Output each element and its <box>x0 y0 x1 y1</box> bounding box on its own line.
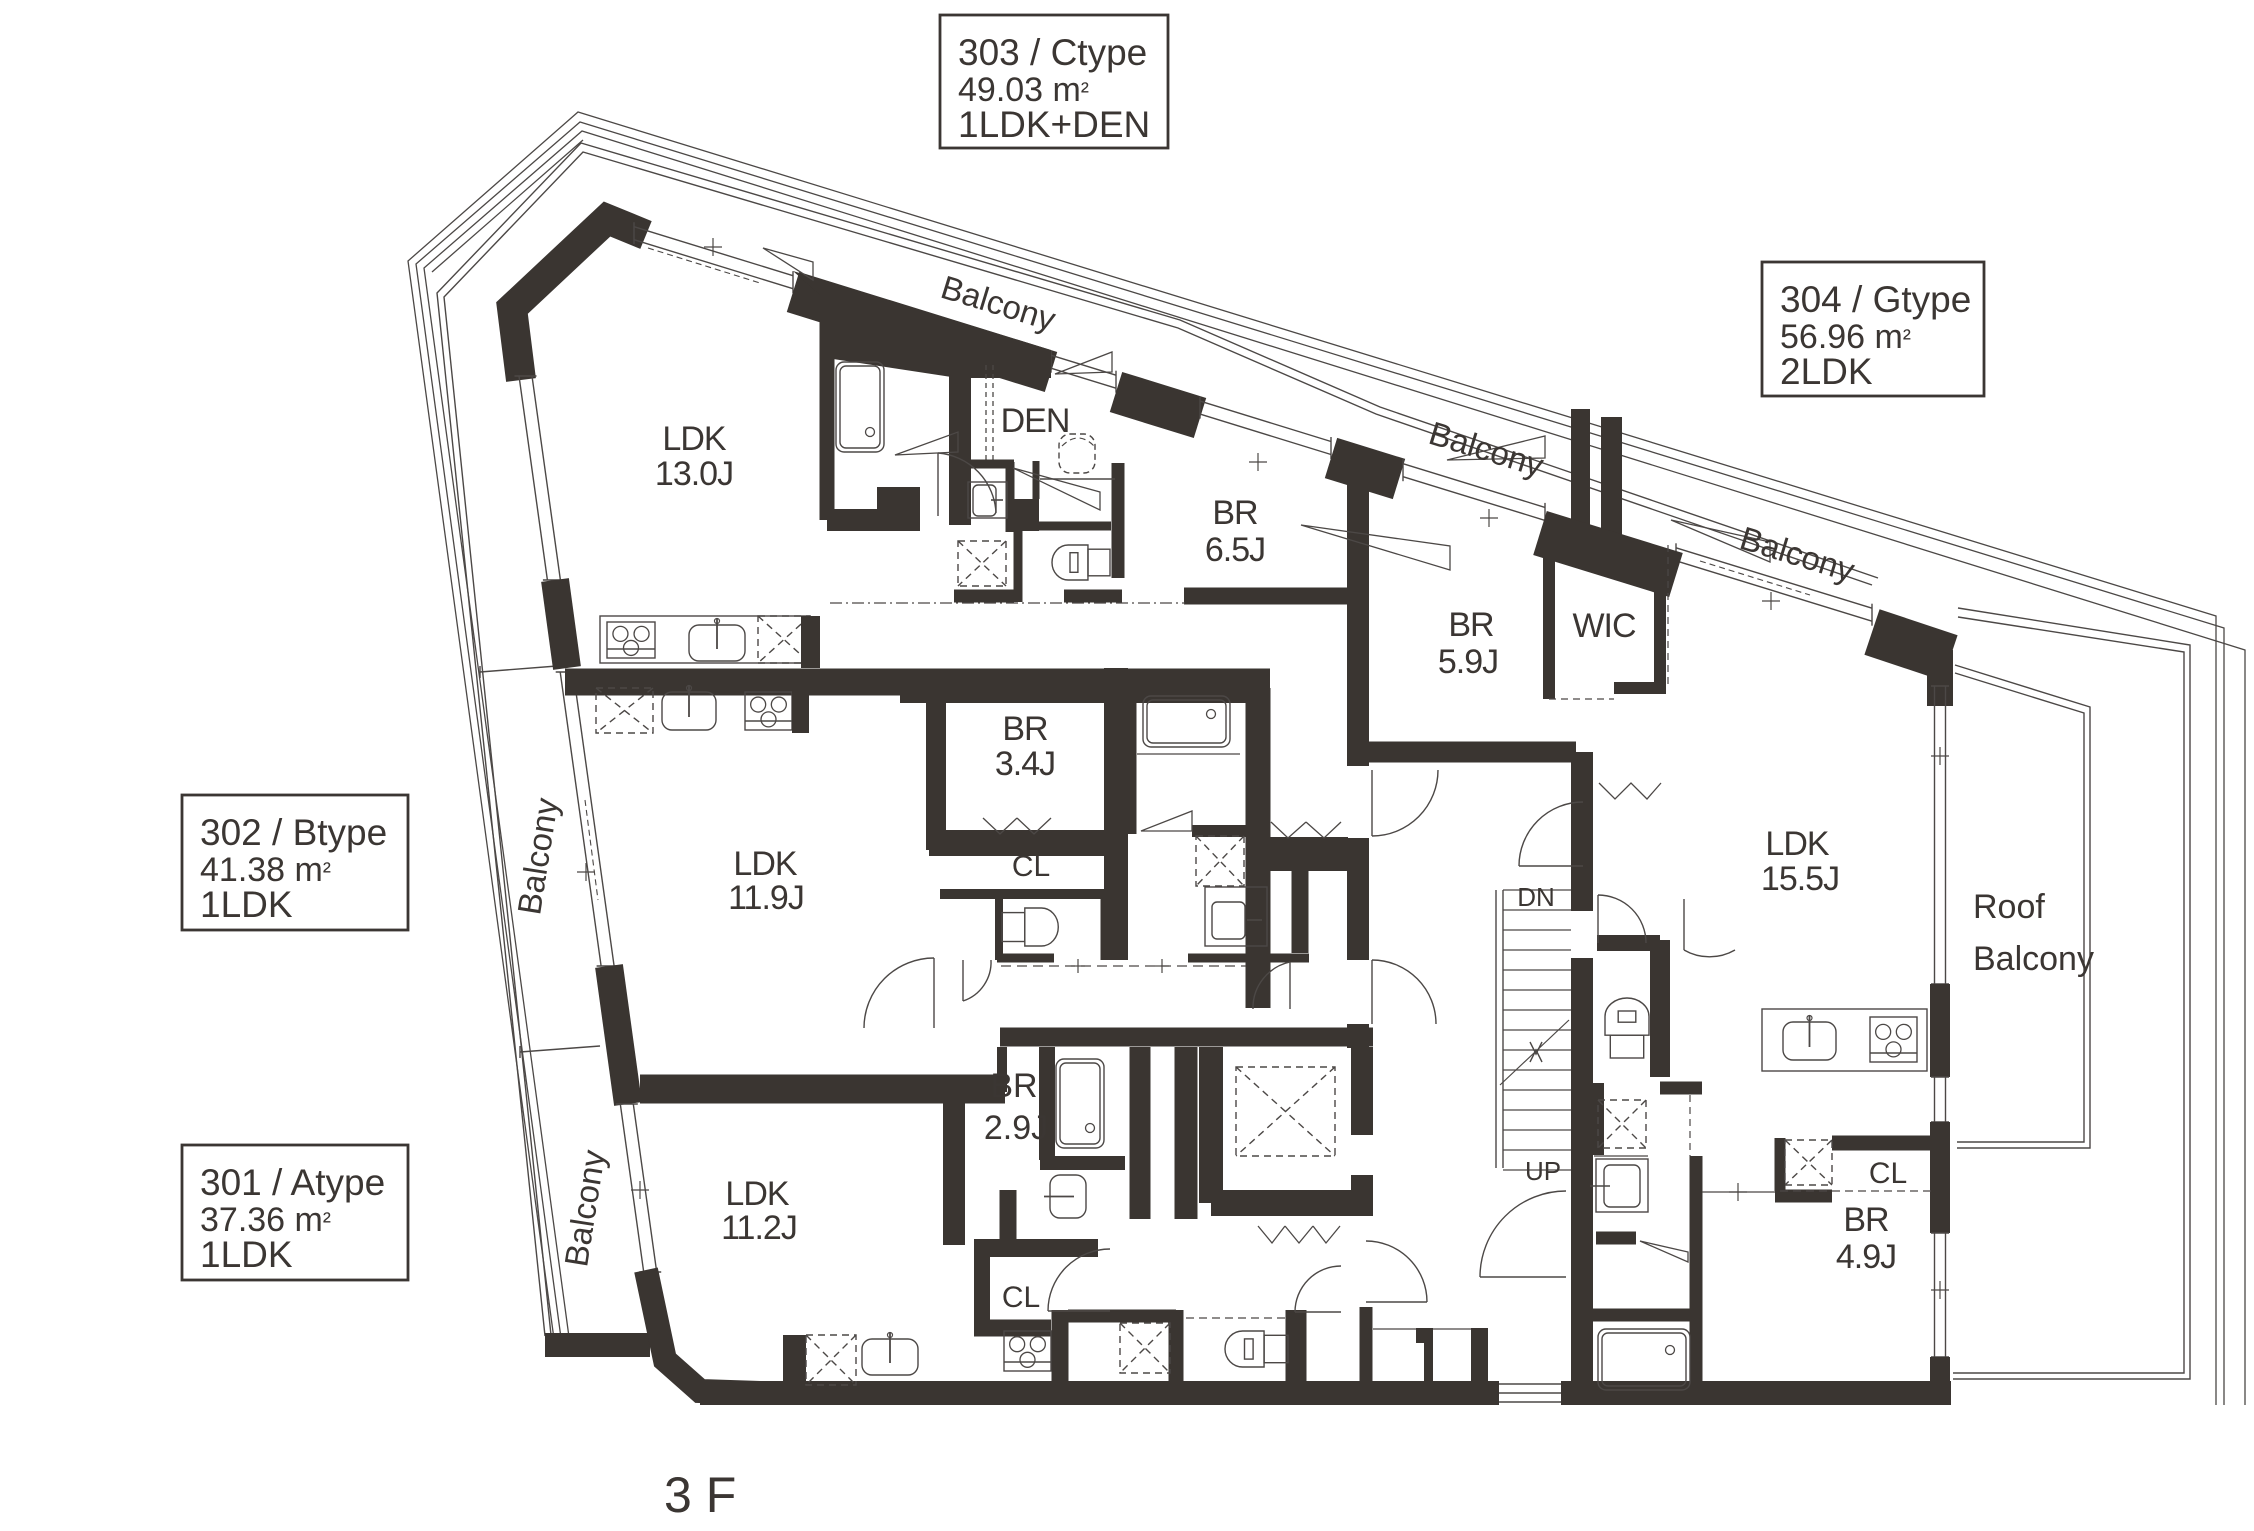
svg-text:11.9J: 11.9J <box>728 879 804 917</box>
svg-text:13.0J: 13.0J <box>655 455 733 493</box>
svg-text:BR: BR <box>1002 710 1047 748</box>
svg-text:LDK: LDK <box>1765 825 1829 863</box>
svg-text:DN: DN <box>1517 882 1555 912</box>
svg-text:1LDK+DEN: 1LDK+DEN <box>958 104 1150 145</box>
svg-text:304 / Gtype: 304 / Gtype <box>1780 279 1971 320</box>
svg-text:3 F: 3 F <box>664 1467 736 1523</box>
svg-text:CL: CL <box>1002 1281 1040 1314</box>
svg-text:Roof: Roof <box>1973 888 2045 926</box>
svg-text:CL: CL <box>1012 850 1050 883</box>
svg-text:BR: BR <box>1843 1201 1888 1239</box>
svg-text:11.2J: 11.2J <box>721 1209 797 1247</box>
svg-text:LDK: LDK <box>725 1175 789 1213</box>
svg-text:4.9J: 4.9J <box>1836 1238 1896 1276</box>
svg-text:1LDK: 1LDK <box>200 1234 293 1275</box>
svg-text:UP: UP <box>1525 1156 1561 1186</box>
svg-text:3.4J: 3.4J <box>995 745 1055 783</box>
svg-text:301 / Atype: 301 / Atype <box>200 1162 385 1203</box>
svg-text:BR: BR <box>1212 494 1257 532</box>
svg-text:BR: BR <box>1448 606 1493 644</box>
svg-text:303 / Ctype: 303 / Ctype <box>958 32 1147 73</box>
svg-text:DEN: DEN <box>1001 402 1070 440</box>
svg-text:6.5J: 6.5J <box>1205 531 1265 569</box>
svg-text:BR: BR <box>990 1067 1037 1105</box>
svg-text:302 / Btype: 302 / Btype <box>200 812 387 853</box>
svg-text:CL: CL <box>1869 1157 1907 1190</box>
svg-text:WIC: WIC <box>1572 607 1636 645</box>
svg-text:2.9J: 2.9J <box>984 1109 1048 1147</box>
svg-text:Balcony: Balcony <box>1973 940 2094 978</box>
svg-text:2LDK: 2LDK <box>1780 351 1873 392</box>
svg-text:LDK: LDK <box>733 845 797 883</box>
svg-text:LDK: LDK <box>662 420 726 458</box>
svg-text:1LDK: 1LDK <box>200 884 293 925</box>
svg-text:15.5J: 15.5J <box>1761 860 1839 898</box>
svg-text:5.9J: 5.9J <box>1438 643 1498 681</box>
